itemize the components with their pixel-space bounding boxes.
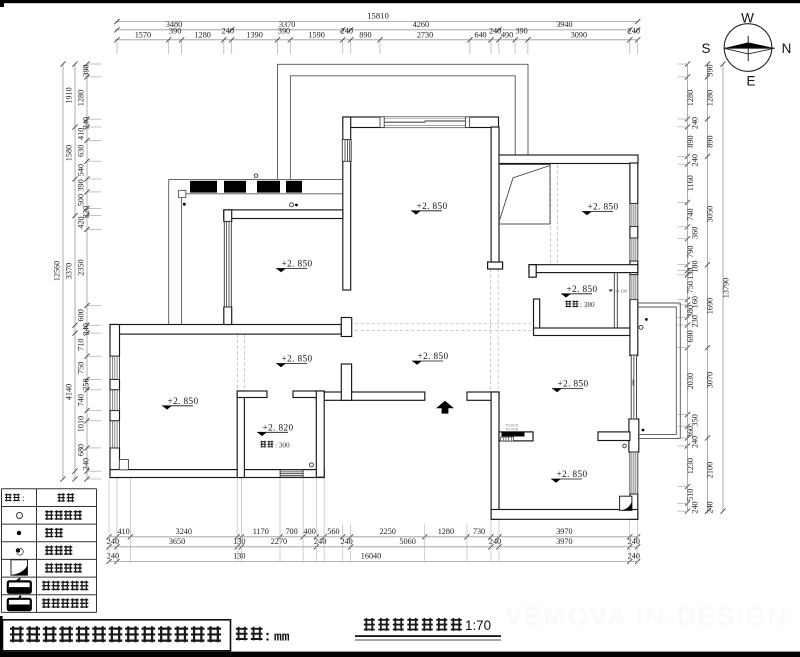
svg-text:240: 240 <box>691 117 700 129</box>
svg-text:390: 390 <box>169 27 181 36</box>
svg-text:: 300: : 300 <box>275 441 290 449</box>
svg-text:S: S <box>701 41 710 56</box>
svg-text:3970: 3970 <box>556 527 572 536</box>
svg-text:3650: 3650 <box>169 537 185 546</box>
svg-text:3370: 3370 <box>65 263 74 279</box>
svg-text:240: 240 <box>341 27 353 36</box>
svg-text:2350: 2350 <box>77 259 86 275</box>
svg-text:1580: 1580 <box>65 145 74 161</box>
svg-text:3090: 3090 <box>571 30 587 39</box>
svg-text:1160: 1160 <box>686 175 695 191</box>
svg-text:VEMOVA IN-DESIGN: VEMOVA IN-DESIGN <box>505 601 788 631</box>
svg-text:4260: 4260 <box>413 20 429 29</box>
svg-text:3970: 3970 <box>556 537 572 546</box>
svg-text:2250: 2250 <box>380 527 396 536</box>
svg-text:3240: 3240 <box>176 527 192 536</box>
svg-text:750: 750 <box>686 281 695 293</box>
svg-text:13790: 13790 <box>722 278 731 298</box>
svg-text:130: 130 <box>686 268 695 280</box>
svg-text:+2. 850: +2. 850 <box>282 354 313 364</box>
svg-text:240: 240 <box>82 458 91 470</box>
svg-text:680: 680 <box>77 444 86 456</box>
svg-text:410: 410 <box>77 128 86 140</box>
svg-text:1170: 1170 <box>253 527 269 536</box>
svg-text:710: 710 <box>77 339 86 351</box>
svg-text:1690: 1690 <box>706 298 715 314</box>
svg-text:420: 420 <box>77 216 86 228</box>
svg-text:2030: 2030 <box>686 373 695 389</box>
svg-text:1280: 1280 <box>77 90 86 106</box>
svg-text:740: 740 <box>77 394 86 406</box>
svg-text:560: 560 <box>327 527 339 536</box>
svg-text:390: 390 <box>77 179 86 191</box>
svg-text:630: 630 <box>77 145 86 157</box>
svg-text:5060: 5060 <box>399 537 415 546</box>
svg-text:+2. 850: +2. 850 <box>567 284 598 294</box>
svg-text:1280: 1280 <box>706 90 715 106</box>
svg-text:250: 250 <box>82 378 91 390</box>
svg-text:+2. 850: +2. 850 <box>168 396 199 406</box>
svg-text:3940: 3940 <box>556 20 572 29</box>
svg-text:890: 890 <box>706 135 715 147</box>
svg-text:+2. 850: +2. 850 <box>418 351 449 361</box>
svg-text:2270: 2270 <box>271 537 287 546</box>
svg-text:1280: 1280 <box>686 90 695 106</box>
svg-text:500: 500 <box>77 194 86 206</box>
svg-text:TN.XDB: TN.XDB <box>505 428 519 432</box>
svg-text:640: 640 <box>474 30 486 39</box>
svg-text:+2. 850: +2. 850 <box>588 202 619 212</box>
svg-text:+2. 850: +2. 850 <box>417 201 448 211</box>
svg-text:540: 540 <box>77 164 86 176</box>
svg-text:230: 230 <box>691 315 700 327</box>
svg-text:240: 240 <box>489 27 501 36</box>
svg-text:490: 490 <box>501 30 513 39</box>
svg-text:730: 730 <box>473 527 485 536</box>
svg-text:1280: 1280 <box>438 527 454 536</box>
svg-text:1390: 1390 <box>246 30 262 39</box>
svg-text:+2. 820: +2. 820 <box>263 423 294 433</box>
svg-text:12560: 12560 <box>53 261 62 281</box>
svg-text:790: 790 <box>686 246 695 258</box>
svg-text:600: 600 <box>77 309 86 321</box>
svg-text:690: 690 <box>686 330 695 342</box>
svg-text:750: 750 <box>77 362 86 374</box>
svg-text:-0.130: -0.130 <box>615 288 628 293</box>
svg-text:890: 890 <box>359 30 371 39</box>
svg-text:2100: 2100 <box>706 462 715 478</box>
svg-text:130: 130 <box>233 551 245 560</box>
svg-text:1230: 1230 <box>686 458 695 474</box>
svg-text:700: 700 <box>285 527 297 536</box>
svg-text:1570: 1570 <box>135 30 151 39</box>
svg-text:: 380: : 380 <box>580 301 595 309</box>
svg-text:410: 410 <box>117 527 129 536</box>
svg-text:240: 240 <box>222 27 234 36</box>
svg-text:1010: 1010 <box>77 416 86 432</box>
svg-text:1280: 1280 <box>195 30 211 39</box>
svg-text:240: 240 <box>706 501 715 513</box>
svg-text:N: N <box>782 41 792 56</box>
svg-text:400: 400 <box>304 527 316 536</box>
svg-text:mm: mm <box>274 630 290 645</box>
svg-text:+2. 850: +2. 850 <box>557 469 588 479</box>
svg-text:130: 130 <box>233 537 245 546</box>
svg-text:360: 360 <box>691 227 700 239</box>
svg-text:740: 740 <box>686 208 695 220</box>
svg-text:240: 240 <box>691 501 700 513</box>
svg-text:1590: 1590 <box>308 30 324 39</box>
svg-text:240: 240 <box>691 436 700 448</box>
svg-text:3050: 3050 <box>706 206 715 222</box>
svg-text:890: 890 <box>686 135 695 147</box>
svg-text:1910: 1910 <box>65 87 74 103</box>
svg-text:510: 510 <box>686 489 695 501</box>
svg-text:240: 240 <box>628 27 640 36</box>
svg-text:240: 240 <box>82 323 91 335</box>
svg-text:240: 240 <box>82 117 91 129</box>
svg-text:15810: 15810 <box>367 10 388 20</box>
svg-text:W: W <box>741 11 754 26</box>
svg-text:4140: 4140 <box>65 384 74 400</box>
svg-text:240: 240 <box>691 154 700 166</box>
svg-text::: : <box>22 493 25 503</box>
svg-text:390: 390 <box>515 27 527 36</box>
svg-text:220: 220 <box>82 206 91 218</box>
svg-text:350: 350 <box>691 414 700 426</box>
svg-text:+2. 850: +2. 850 <box>558 379 589 389</box>
svg-text:+2. 850: +2. 850 <box>282 259 313 269</box>
svg-text:3070: 3070 <box>706 372 715 388</box>
svg-text:1:70: 1:70 <box>465 618 491 633</box>
svg-text:16040: 16040 <box>361 551 381 560</box>
svg-text:2730: 2730 <box>417 30 433 39</box>
svg-text:390: 390 <box>82 64 91 76</box>
svg-text:390: 390 <box>706 64 715 76</box>
svg-text:E: E <box>746 74 755 89</box>
svg-text:390: 390 <box>278 27 290 36</box>
